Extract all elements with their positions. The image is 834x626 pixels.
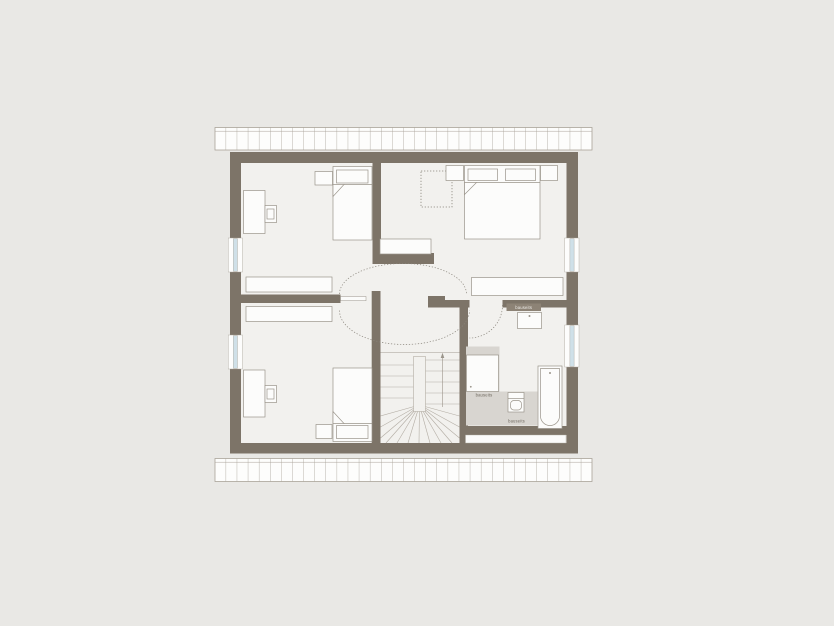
window-right-lower: [565, 325, 579, 367]
window-left-upper: [228, 238, 242, 272]
shower-label: bauseits: [476, 392, 493, 397]
bed-pillow-right: [506, 169, 536, 181]
bed-pillow-left: [468, 169, 498, 181]
chair-seat: [267, 209, 274, 219]
wall-left-room-divider: [241, 295, 341, 304]
sink-faucet-dot: [529, 315, 531, 317]
wardrobe-long: [472, 278, 564, 296]
bed-pillow: [337, 170, 369, 183]
niche-label: bauseits: [515, 305, 532, 310]
stair-spine: [414, 357, 426, 412]
bed-pillow: [337, 426, 369, 439]
nightstand-left: [446, 166, 464, 181]
door-leaf-bottom-left-room: [341, 297, 367, 301]
sink: [518, 313, 542, 329]
bathtub-inner: [541, 369, 560, 426]
bathtub-faucet-dot: [549, 372, 551, 374]
nightstand: [315, 172, 333, 186]
desk: [244, 191, 266, 234]
window-right-upper: [565, 238, 579, 272]
wall-stub-hall-north: [373, 253, 435, 264]
wardrobe: [246, 277, 332, 292]
nightstand: [316, 425, 332, 439]
desk: [244, 370, 266, 417]
chair-seat: [267, 389, 274, 399]
wardrobe: [246, 307, 332, 322]
shower: [467, 355, 499, 392]
floor-plan-drawing: bauseits bauseits bauseits: [0, 0, 834, 626]
sideboard: [380, 239, 431, 254]
bath-floor-label: bauseits: [508, 418, 525, 423]
nightstand-right: [541, 166, 558, 181]
wall-hall-block-east: [428, 296, 445, 308]
shower-drain-dot: [470, 386, 472, 388]
roof-overhang-top: [215, 128, 592, 151]
toilet-bowl: [511, 401, 522, 411]
roof-overhang-bottom: [215, 459, 592, 482]
window-left-lower: [228, 335, 242, 369]
floor-plan-page: bauseits bauseits bauseits: [0, 0, 834, 626]
knee-wall-niche: [466, 435, 567, 443]
wall-stair-west: [372, 291, 381, 443]
